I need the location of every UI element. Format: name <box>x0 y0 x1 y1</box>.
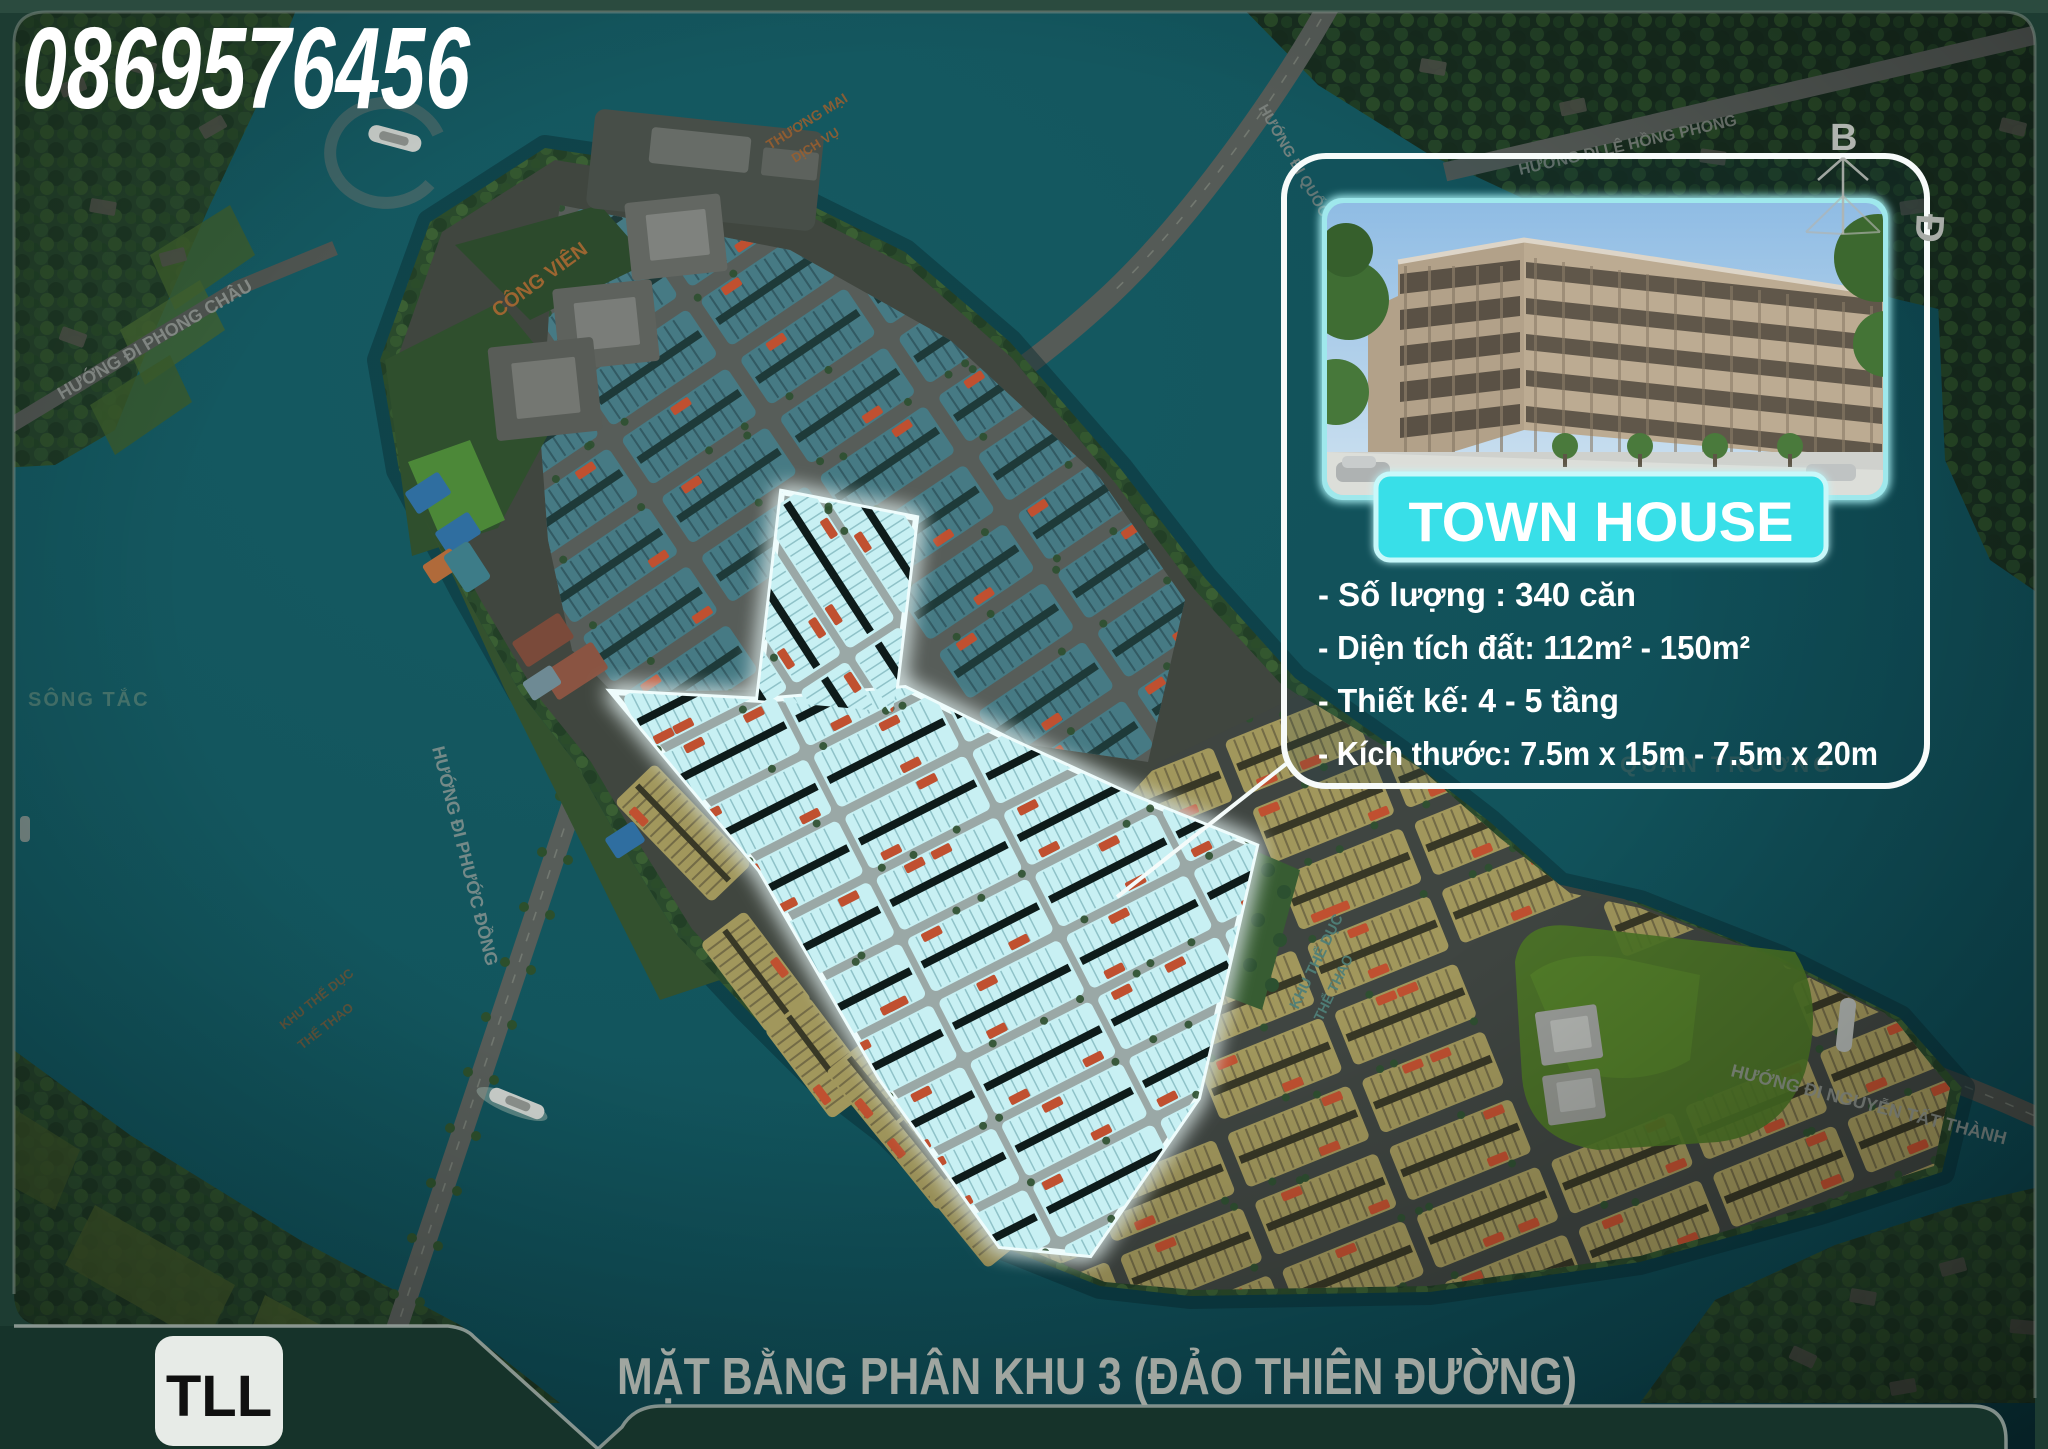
svg-text:- Diện tích đất: 112m² - 150m²: - Diện tích đất: 112m² - 150m² <box>1318 629 1750 666</box>
svg-text:MẶT BẰNG PHÂN KHU 3 (ĐẢO THIÊN: MẶT BẰNG PHÂN KHU 3 (ĐẢO THIÊN ĐƯỜNG) <box>617 1347 1577 1406</box>
svg-text:- Thiết kế: 4 - 5 tầng: - Thiết kế: 4 - 5 tầng <box>1318 682 1619 719</box>
svg-text:TLL: TLL <box>166 1364 272 1429</box>
svg-text:- Số lượng : 340 căn: - Số lượng : 340 căn <box>1318 576 1636 613</box>
svg-text:TOWN HOUSE: TOWN HOUSE <box>1409 490 1794 553</box>
svg-text:- Kích thước: 7.5m x 15m - 7.5: - Kích thước: 7.5m x 15m - 7.5m x 20m <box>1318 735 1878 772</box>
svg-text:B: B <box>1830 117 1857 159</box>
svg-text:0869576456: 0869576456 <box>22 3 471 133</box>
svg-text:Đ: Đ <box>1906 213 1951 244</box>
